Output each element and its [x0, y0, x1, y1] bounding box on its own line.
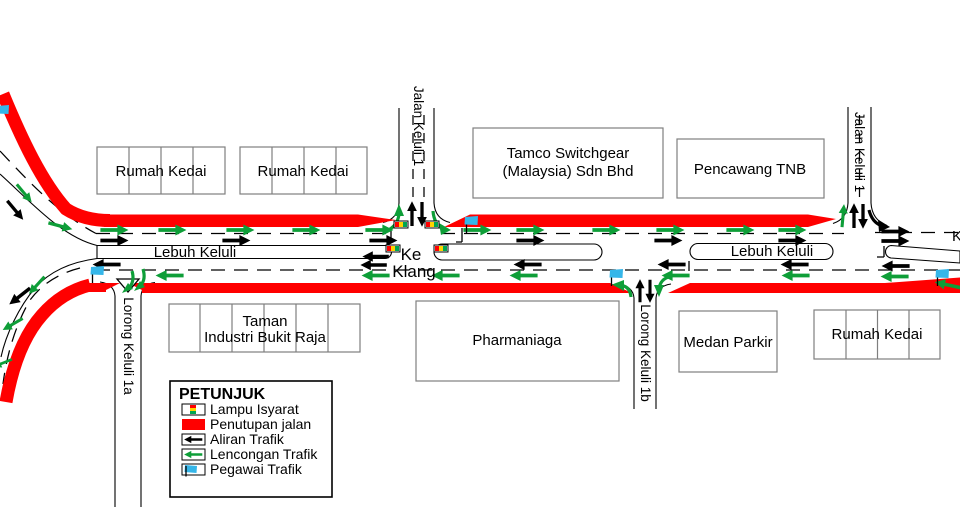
building-taman-industri-bukit-raja: Taman Industri Bukit Raja [169, 304, 360, 352]
legend-label: Aliran Trafik [210, 431, 285, 447]
building-label: Rumah Kedai [258, 163, 349, 180]
road-label-jalan-keluli1-west: Jalan Keluli 1 [411, 86, 426, 166]
flow-arrow [4, 198, 27, 223]
lorong-keluli1b-left-edge [618, 284, 634, 409]
direction-label-klang: Klang [392, 262, 435, 281]
flow-arrow [658, 259, 686, 270]
diversion-arrow [13, 181, 35, 205]
diversion-arrow [156, 270, 184, 281]
signal-green-cell [190, 411, 196, 414]
stop-line [456, 228, 462, 242]
signal-red-cell [190, 405, 196, 408]
diversion-arrow [881, 271, 909, 282]
diversion-turn-arrow-head [394, 204, 404, 216]
median-island-far-east [885, 246, 960, 264]
lorong-keluli1a-left-edge [100, 282, 115, 507]
traffic-light-icon [425, 221, 439, 228]
closure-taper [668, 283, 690, 293]
flow-arrow [881, 235, 909, 246]
road-label-lorong-keluli1b: Lorong Keluli 1b [638, 304, 653, 402]
flow-arrow [635, 279, 644, 302]
traffic-light-icon [434, 245, 448, 252]
jalan-keluli1-east-right-edge [871, 107, 887, 226]
building-label: Industri Bukit Raja [204, 329, 326, 346]
closure-exit-curve [6, 285, 90, 402]
building-label: Pharmaniaga [472, 332, 562, 349]
road-label-lebuh-keluli-east: Lebuh Keluli [731, 243, 814, 260]
diversion-arrow [510, 270, 538, 281]
legend-label: Penutupan jalan [210, 416, 311, 432]
flow-arrow [514, 259, 542, 270]
jalan-keluli1-east-left-edge [833, 107, 848, 224]
diversion-arrow [26, 274, 48, 297]
diversion-turn-arrow [141, 269, 144, 285]
building-rumah-kedai-nw: Rumah Kedai [97, 147, 225, 194]
traffic-light-icon [386, 245, 400, 252]
closure-south-band-a [82, 283, 106, 292]
flow-arrow [369, 235, 397, 246]
legend-label: Lampu Isyarat [210, 401, 299, 417]
building-label: Rumah Kedai [116, 163, 207, 180]
flow-arrow [360, 260, 386, 270]
median-island-center [434, 244, 602, 260]
traffic-light-icon [394, 221, 408, 228]
diversion-arrow [432, 270, 460, 281]
building-tamco-switchgear: Tamco Switchgear (Malaysia) Sdn Bhd [473, 128, 663, 198]
flow-arrow [781, 259, 809, 270]
signal-yellow-cell [190, 408, 196, 411]
legend-label: Pegawai Trafik [210, 461, 303, 477]
closure-entry-curve [3, 94, 110, 221]
diversion-arrow [782, 270, 810, 281]
building-label: Pencawang TNB [694, 161, 806, 178]
building-medan-parkir: Medan Parkir [679, 311, 777, 372]
road-closure-swatch [182, 419, 205, 430]
building-label: Medan Parkir [683, 334, 772, 351]
closure-north-band-west [104, 215, 358, 228]
jalan-keluli1-west-right-edge [434, 108, 450, 223]
jalan-keluli1-west-left-edge [383, 108, 399, 223]
closure-south-band-b [142, 283, 610, 293]
closure-taper [808, 215, 836, 228]
legend-label: Lencongan Trafik [210, 446, 318, 462]
flow-arrow [407, 201, 417, 226]
median-island-west [97, 246, 392, 259]
flow-arrow [858, 204, 868, 229]
building-label: Rumah Kedai [832, 326, 923, 343]
flow-arrow [654, 235, 682, 246]
legend: PETUNJUK Lampu Isyarat Penutupan jalan A… [170, 381, 332, 497]
road-label-jalan-keluli1-east: Jalan Keluli 1 [852, 112, 867, 192]
building-pencawang-tnb: Pencawang TNB [677, 139, 824, 198]
road-label-lorong-keluli1a: Lorong Keluli 1a [121, 297, 136, 395]
diagram-canvas: Rumah Kedai Rumah Kedai Tamco Switchgear… [0, 0, 960, 507]
flow-arrow [849, 203, 859, 228]
closure-taper [358, 215, 396, 228]
building-pharmaniaga: Pharmaniaga [416, 301, 619, 381]
lorong-keluli1b-right-edge [656, 284, 671, 409]
diversion-arrow [362, 270, 390, 281]
building-rumah-kedai-n: Rumah Kedai [240, 147, 367, 194]
traffic-officer-icon [91, 266, 105, 283]
traffic-diversion-plan: Rumah Kedai Rumah Kedai Tamco Switchgear… [0, 0, 960, 507]
closure-north-band-east [470, 215, 808, 228]
closure-south-band-c [690, 283, 960, 293]
building-rumah-kedai-se: Rumah Kedai [814, 310, 940, 359]
flow-arrow [100, 235, 128, 246]
diversion-turn-arrow-head [654, 285, 664, 297]
building-label: Tamco Switchgear [507, 145, 630, 162]
building-label: (Malaysia) Sdn Bhd [503, 163, 634, 180]
stop-line [877, 246, 884, 257]
building-label: Taman [242, 313, 287, 330]
lorong-keluli1a-right-edge [141, 283, 155, 507]
flow-arrow [645, 280, 654, 303]
road-label-edge: K [952, 228, 960, 245]
road-label-lebuh-keluli-west: Lebuh Keluli [154, 244, 237, 261]
